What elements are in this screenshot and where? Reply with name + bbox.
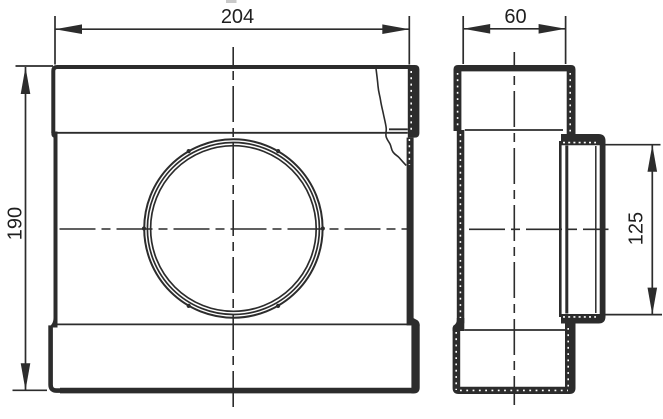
svg-text:60: 60 (504, 6, 526, 28)
svg-text:125: 125 (626, 212, 648, 245)
svg-text:204: 204 (221, 6, 254, 28)
svg-text:190: 190 (4, 207, 26, 240)
